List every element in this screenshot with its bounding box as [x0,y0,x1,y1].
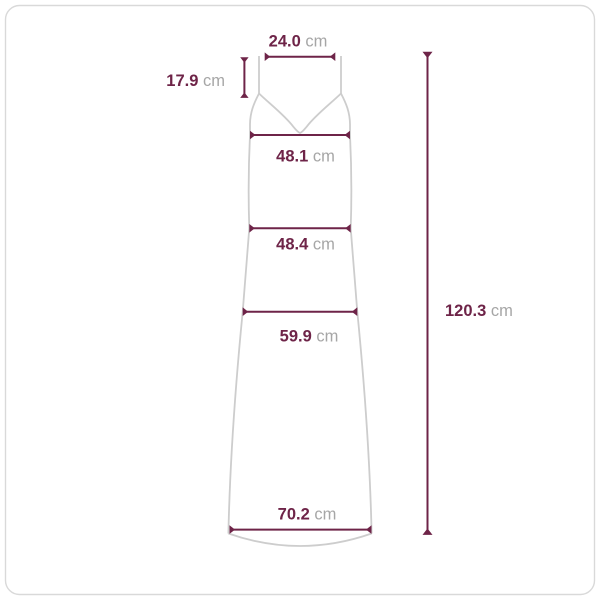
svg-text:48.4 cm: 48.4 cm [276,236,335,254]
svg-text:59.9 cm: 59.9 cm [280,328,339,346]
svg-text:120.3 cm: 120.3 cm [445,302,513,320]
svg-text:48.1 cm: 48.1 cm [276,148,335,166]
svg-text:24.0 cm: 24.0 cm [269,33,328,51]
svg-text:17.9 cm: 17.9 cm [166,72,225,90]
svg-text:70.2 cm: 70.2 cm [278,506,337,524]
